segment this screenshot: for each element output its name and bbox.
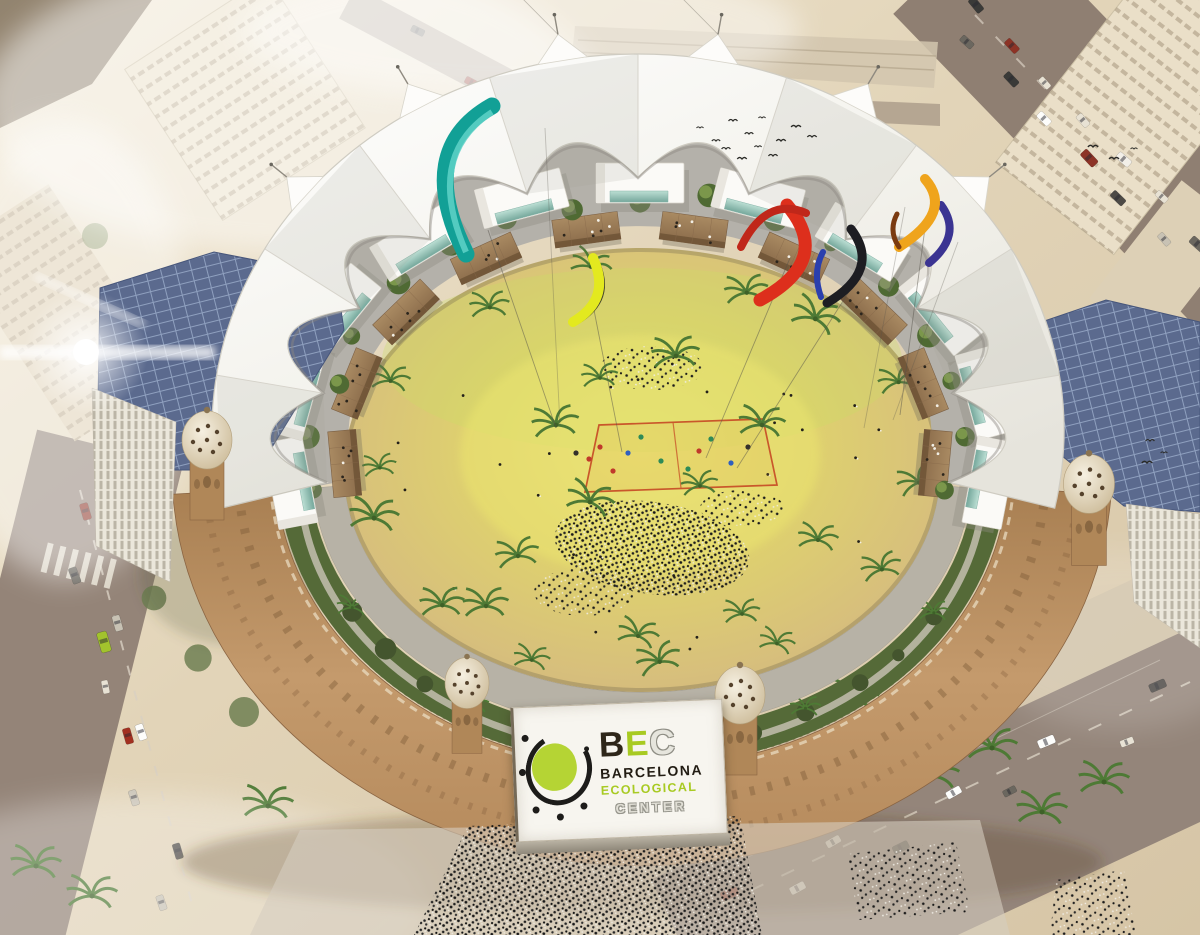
- logo-dot: [521, 734, 528, 741]
- acronym-letter: B: [598, 725, 626, 765]
- logo-dot: [557, 813, 564, 820]
- logo-dot: [580, 802, 587, 809]
- bec-banner: BEC BARCELONA ECOLOGICAL CENTER: [510, 699, 727, 843]
- banner-text: BEC BARCELONA ECOLOGICAL CENTER: [598, 722, 721, 816]
- aerial-rendering-canvas: BEC BARCELONA ECOLOGICAL CENTER: [0, 0, 1200, 935]
- logo-dot: [584, 746, 589, 751]
- logo-dot: [532, 806, 539, 813]
- banner-acronym: BEC: [598, 723, 718, 764]
- banner-line-eco: ECOLOGICAL: [601, 780, 720, 798]
- banner-line-center: CENTER: [615, 798, 720, 816]
- bec-logo-icon: [519, 719, 599, 826]
- acronym-letter: C: [649, 723, 677, 763]
- acronym-letter: E: [624, 724, 650, 764]
- banner-line-city: BARCELONA: [600, 762, 719, 781]
- logo-dot: [519, 768, 526, 775]
